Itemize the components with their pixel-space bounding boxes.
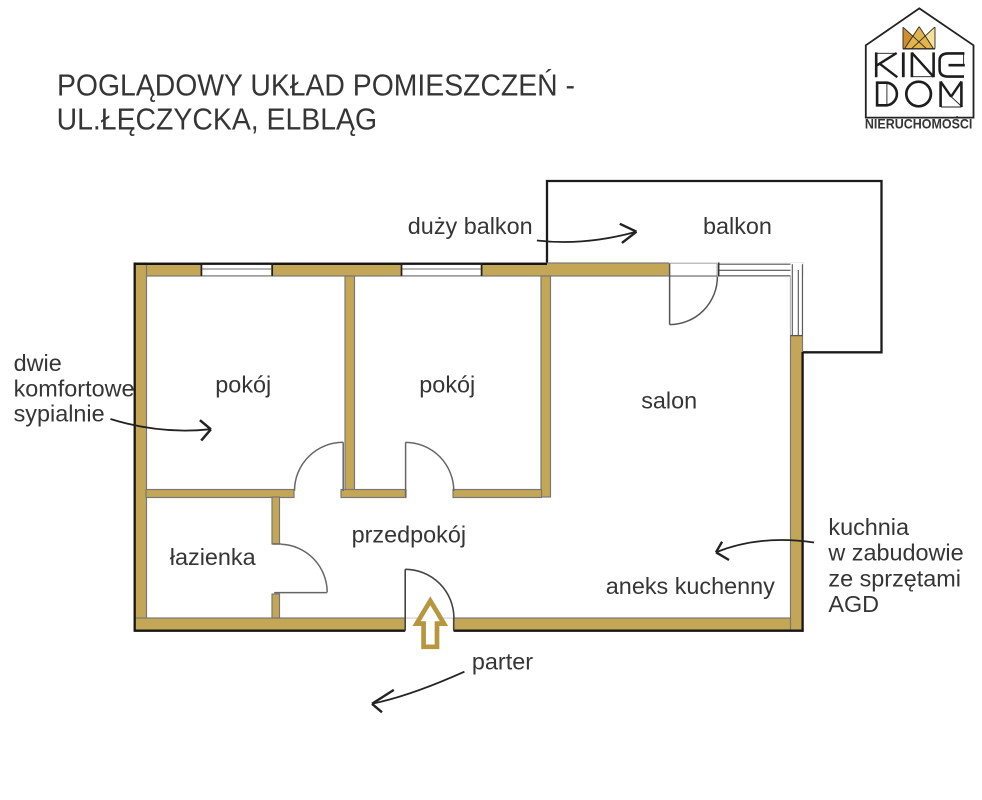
svg-text:sypialnie: sypialnie: [14, 400, 105, 426]
svg-text:aneks kuchenny: aneks kuchenny: [606, 573, 775, 599]
svg-text:pokój: pokój: [215, 372, 271, 398]
svg-text:duży balkon: duży balkon: [408, 213, 533, 239]
svg-text:dwie: dwie: [14, 350, 62, 376]
svg-text:POGLĄDOWY UKŁAD POMIESZCZEŃ -: POGLĄDOWY UKŁAD POMIESZCZEŃ -: [57, 68, 575, 103]
svg-text:przedpokój: przedpokój: [352, 521, 466, 547]
svg-text:łazienka: łazienka: [170, 544, 257, 570]
svg-text:parter: parter: [472, 649, 533, 675]
svg-text:w zabudowie: w zabudowie: [827, 539, 963, 565]
svg-text:UL.ŁĘCZYCKA, ELBLĄG: UL.ŁĘCZYCKA, ELBLĄG: [57, 102, 378, 137]
svg-text:salon: salon: [641, 388, 697, 414]
svg-text:NIERUCHOMOŚCI: NIERUCHOMOŚCI: [865, 117, 973, 132]
svg-text:kuchnia: kuchnia: [828, 514, 910, 540]
svg-text:ze sprzętami: ze sprzętami: [828, 566, 961, 592]
svg-text:pokój: pokój: [419, 372, 475, 398]
svg-text:balkon: balkon: [703, 213, 772, 239]
svg-text:komfortowe: komfortowe: [14, 375, 135, 401]
svg-text:AGD: AGD: [828, 591, 879, 617]
